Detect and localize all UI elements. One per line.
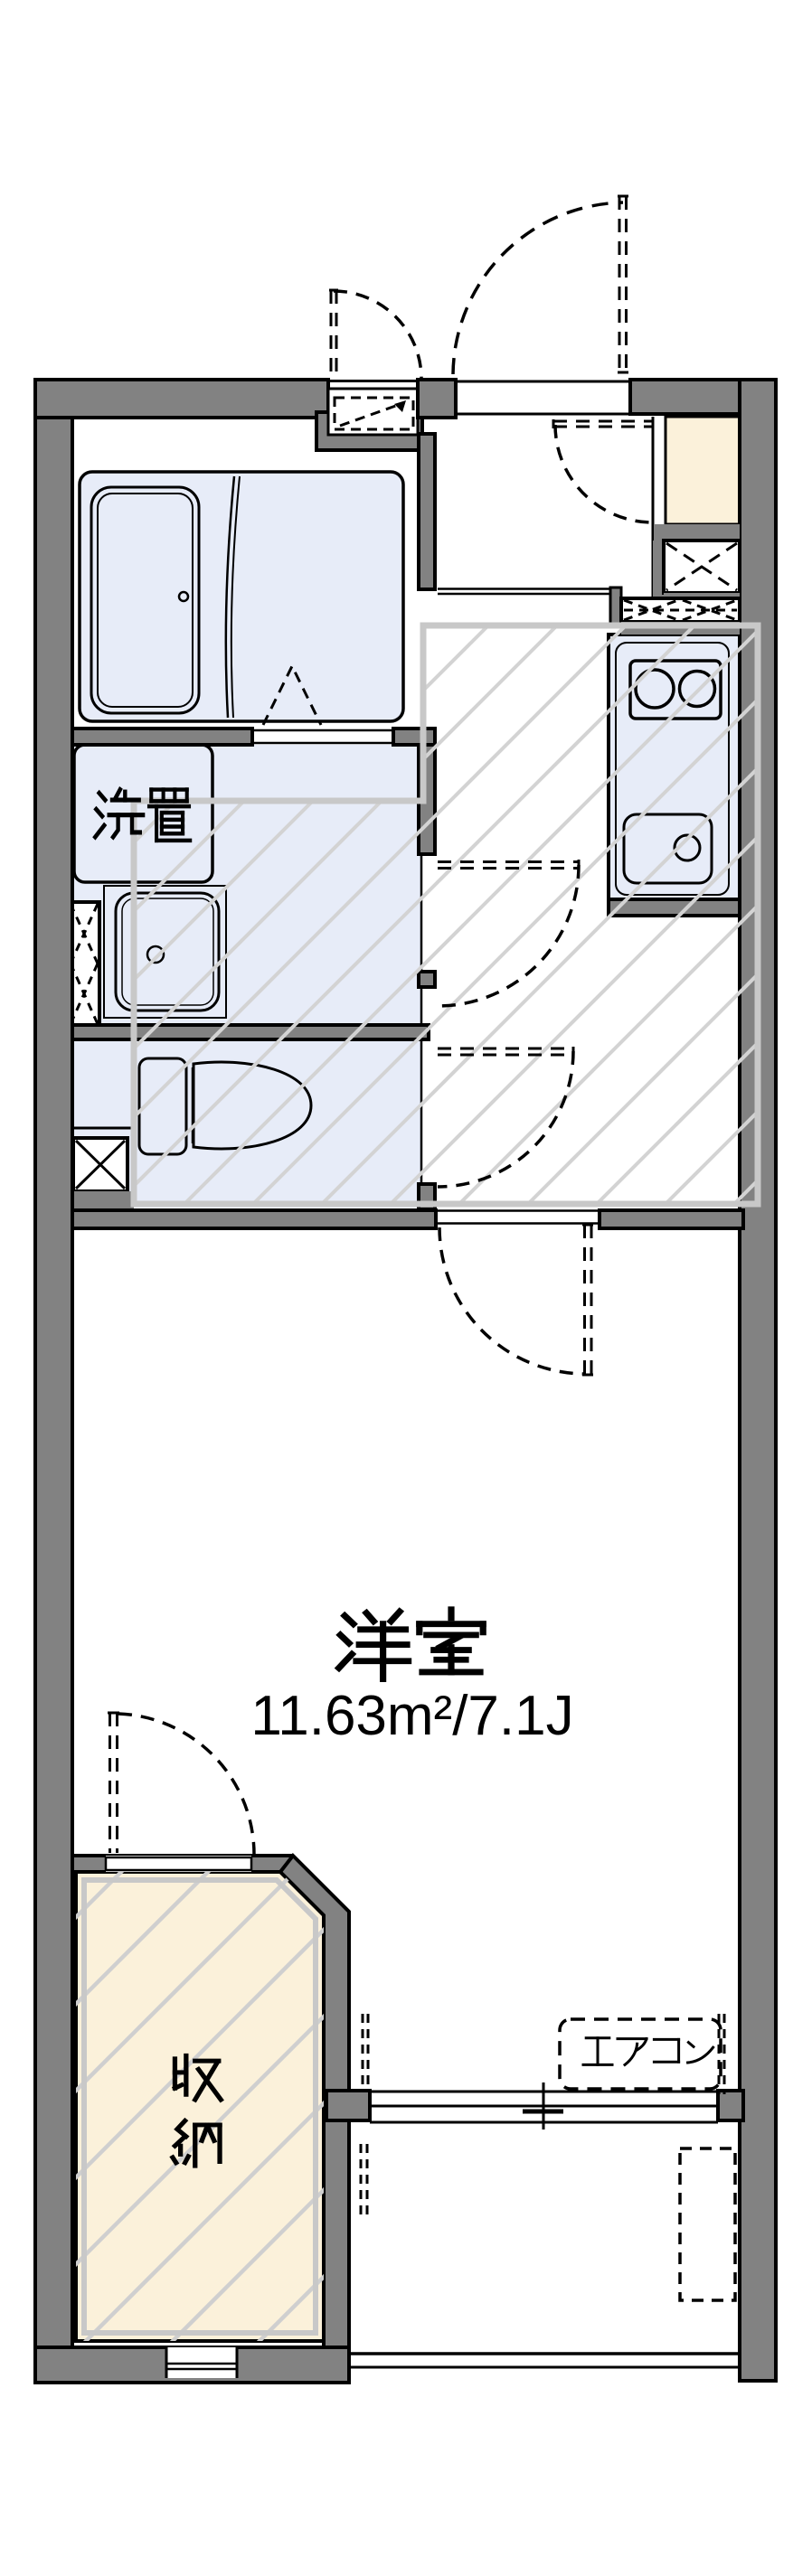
svg-text:11.63m²/7.1J: 11.63m²/7.1J: [250, 1685, 573, 1747]
